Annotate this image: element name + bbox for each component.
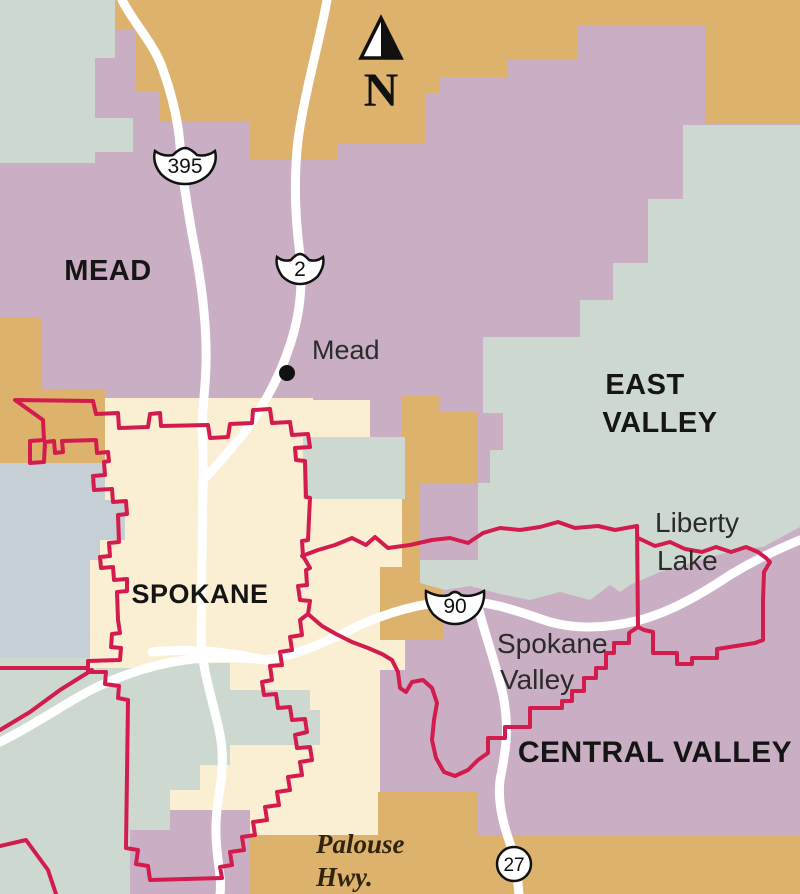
spokane-valley-label-line1: Spokane [497, 628, 608, 659]
spokane-district-map: 395 2 90 27 MEAD EAST VALLEY SPOKANE CEN… [0, 0, 800, 894]
mead-town-label: Mead [312, 335, 380, 365]
palouse-hwy-label-line2: Hwy. [315, 862, 373, 892]
palouse-hwy-label-line1: Palouse [315, 829, 405, 859]
mead-town-dot [279, 365, 295, 381]
north-label: N [364, 64, 399, 117]
us2-shield-number: 2 [294, 258, 306, 281]
central-valley-label: CENTRAL VALLEY [518, 736, 792, 769]
i90-shield-number: 90 [443, 595, 466, 618]
mead-district-label: MEAD [64, 255, 151, 287]
spokane-district-label: SPOKANE [131, 579, 268, 609]
map-canvas: 395 2 90 27 MEAD EAST VALLEY SPOKANE CEN… [0, 0, 800, 894]
us395-shield-number: 395 [167, 155, 202, 178]
liberty-lake-label-line2: Lake [657, 545, 718, 576]
east-valley-label-line1: EAST [605, 369, 684, 401]
spokane-valley-label-line2: Valley [500, 664, 574, 695]
east-valley-label-line2: VALLEY [602, 407, 717, 439]
wa27-shield-icon: 27 [497, 847, 531, 881]
wa27-shield-number: 27 [503, 855, 524, 876]
liberty-lake-label-line1: Liberty [655, 507, 739, 538]
